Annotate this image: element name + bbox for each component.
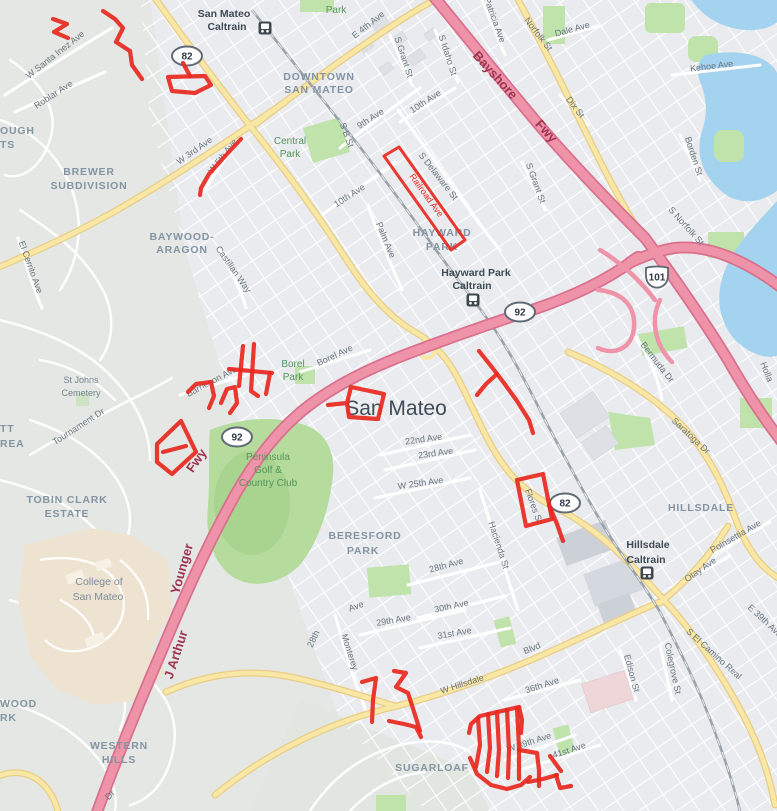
map-label: Country Club — [239, 478, 298, 489]
route-shield-92: 92 — [505, 303, 535, 322]
map-label: Park — [326, 5, 348, 16]
map-label: Peninsula — [246, 452, 290, 463]
map-label: Park — [283, 372, 305, 383]
map-label: RK — [0, 712, 17, 724]
route-shield-82: 82 — [550, 494, 580, 513]
san-mateo-caltrain-icon[interactable] — [259, 22, 272, 35]
map-label: HILLSDALE — [668, 502, 734, 514]
map-label: Cemetery — [61, 388, 101, 398]
map-label: HILLS — [102, 754, 136, 766]
hayward-park-caltrain-icon[interactable] — [467, 294, 480, 307]
map-label: PARK — [347, 545, 379, 557]
map-label: St Johns — [63, 375, 99, 385]
map-label: TS — [0, 139, 15, 151]
shield-number: 82 — [559, 499, 571, 510]
shield-number: 92 — [231, 433, 243, 444]
map-label: Central — [274, 136, 306, 147]
map-label: Borel — [281, 359, 304, 370]
map-label: ARAGON — [156, 244, 207, 256]
map-label: Caltrain — [207, 21, 246, 33]
highlighted-route-segment — [507, 710, 509, 778]
highlighted-route-segment — [497, 712, 499, 776]
shield-number: 82 — [181, 52, 193, 63]
map-label: SAN MATEO — [284, 84, 353, 96]
map-viewport[interactable]: OUGHTSBREWERSUBDIVISIONBAYWOOD-ARAGONDOW… — [0, 0, 777, 811]
route-shield-101: 101 — [646, 267, 668, 288]
shield-number: 101 — [649, 273, 666, 284]
map-label: Golf & — [254, 465, 282, 476]
map-label: College of — [75, 576, 122, 588]
map-label: San Mateo — [198, 8, 251, 20]
map-label: OUGH — [0, 125, 35, 137]
map-label: San Mateo — [73, 591, 124, 603]
map-label: SUBDIVISION — [50, 180, 127, 192]
map-label: DOWNTOWN — [283, 71, 355, 83]
route-shield-92: 92 — [222, 428, 252, 447]
map-label: TT — [0, 423, 14, 435]
map-label: BERESFORD — [328, 530, 401, 542]
map-label: WESTERN — [90, 740, 148, 752]
map-label: Caltrain — [626, 554, 665, 566]
highlighted-route-segment — [517, 708, 519, 779]
map-label: WOOD — [0, 698, 37, 710]
map-label: Caltrain — [452, 280, 491, 292]
map-label: Hayward Park — [441, 267, 511, 279]
map-label: Hillsdale — [626, 539, 669, 551]
map-label: TOBIN CLARK — [27, 494, 108, 506]
hillsdale-caltrain-icon[interactable] — [641, 567, 654, 580]
map-label: REA — [0, 438, 25, 450]
map-label: SUGARLOAF — [395, 762, 469, 774]
map-label: Park — [280, 149, 302, 160]
map-label: BAYWOOD- — [150, 231, 215, 243]
map-label: ESTATE — [45, 508, 90, 520]
route-shield-82: 82 — [172, 47, 202, 66]
map-label: BREWER — [63, 166, 114, 178]
shield-number: 92 — [514, 308, 526, 319]
